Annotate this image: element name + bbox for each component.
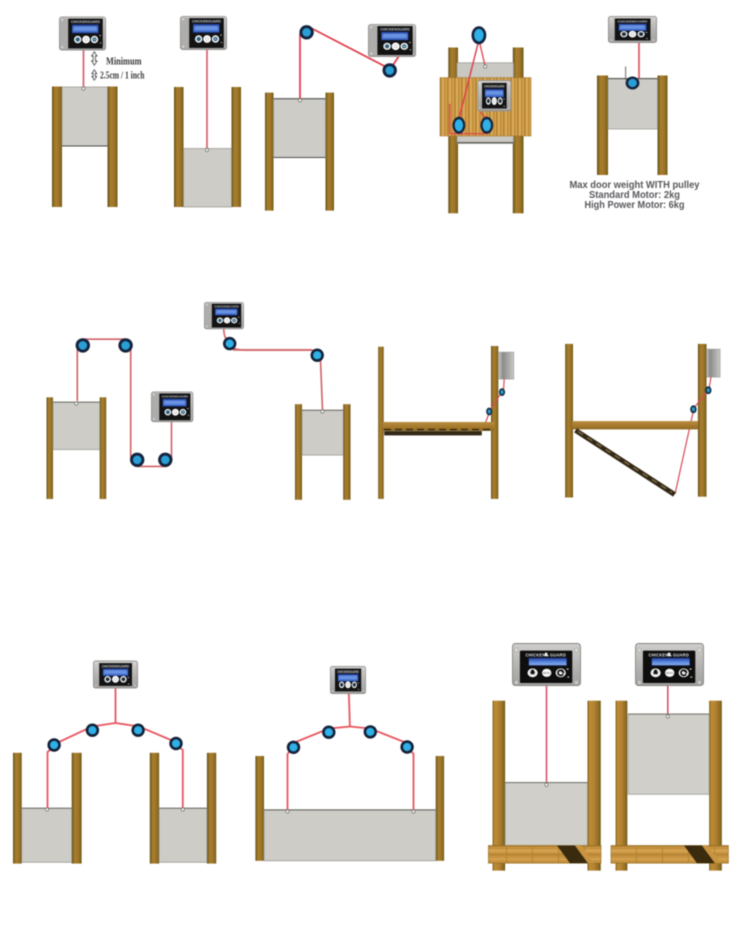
svg-text:High Power Motor: 6kg: High Power Motor: 6kg — [585, 200, 685, 211]
svg-text:2.5cm / 1 inch: 2.5cm / 1 inch — [100, 71, 145, 82]
svg-text:Minimum: Minimum — [106, 57, 142, 68]
